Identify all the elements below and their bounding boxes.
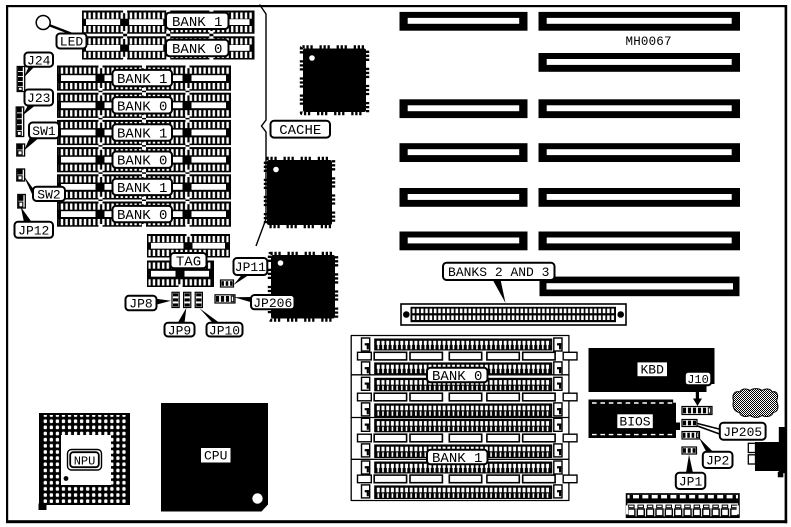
svg-text:J23: J23 [27, 91, 50, 106]
svg-text:SW1: SW1 [32, 124, 56, 139]
svg-text:MH0067: MH0067 [626, 35, 672, 49]
svg-text:JP11: JP11 [235, 260, 266, 275]
svg-text:TAG: TAG [176, 255, 201, 271]
svg-text:J24: J24 [27, 53, 51, 68]
svg-text:BANK 0: BANK 0 [172, 42, 222, 58]
svg-text:BIOS: BIOS [619, 414, 650, 429]
svg-text:BANK 0: BANK 0 [117, 154, 167, 170]
svg-text:CPU: CPU [204, 449, 227, 464]
svg-text:JP205: JP205 [723, 425, 762, 440]
svg-text:JP8: JP8 [129, 297, 152, 312]
svg-text:JP12: JP12 [18, 223, 49, 238]
svg-text:JP10: JP10 [209, 323, 240, 338]
svg-text:JP206: JP206 [253, 296, 292, 311]
svg-text:JP1: JP1 [679, 475, 703, 490]
svg-text:J10: J10 [687, 373, 709, 387]
svg-text:BANK 0: BANK 0 [117, 99, 167, 115]
svg-text:NPU: NPU [74, 454, 96, 468]
svg-text:JP9: JP9 [168, 323, 191, 338]
svg-text:BANK 1: BANK 1 [117, 72, 167, 88]
svg-text:BANK 1: BANK 1 [172, 15, 222, 31]
svg-text:BANK 0: BANK 0 [432, 369, 482, 385]
svg-text:CACHE: CACHE [279, 123, 321, 139]
svg-text:KBD: KBD [640, 363, 664, 378]
svg-text:BANK 1: BANK 1 [432, 451, 482, 467]
svg-text:LED: LED [60, 35, 84, 50]
svg-text:BANK 1: BANK 1 [117, 127, 167, 143]
svg-text:BANK 0: BANK 0 [117, 208, 167, 224]
svg-text:SW2: SW2 [37, 188, 60, 203]
svg-text:JP2: JP2 [706, 454, 729, 469]
svg-text:BANKS 2 AND 3: BANKS 2 AND 3 [448, 265, 549, 280]
svg-text:BANK 1: BANK 1 [117, 181, 167, 197]
